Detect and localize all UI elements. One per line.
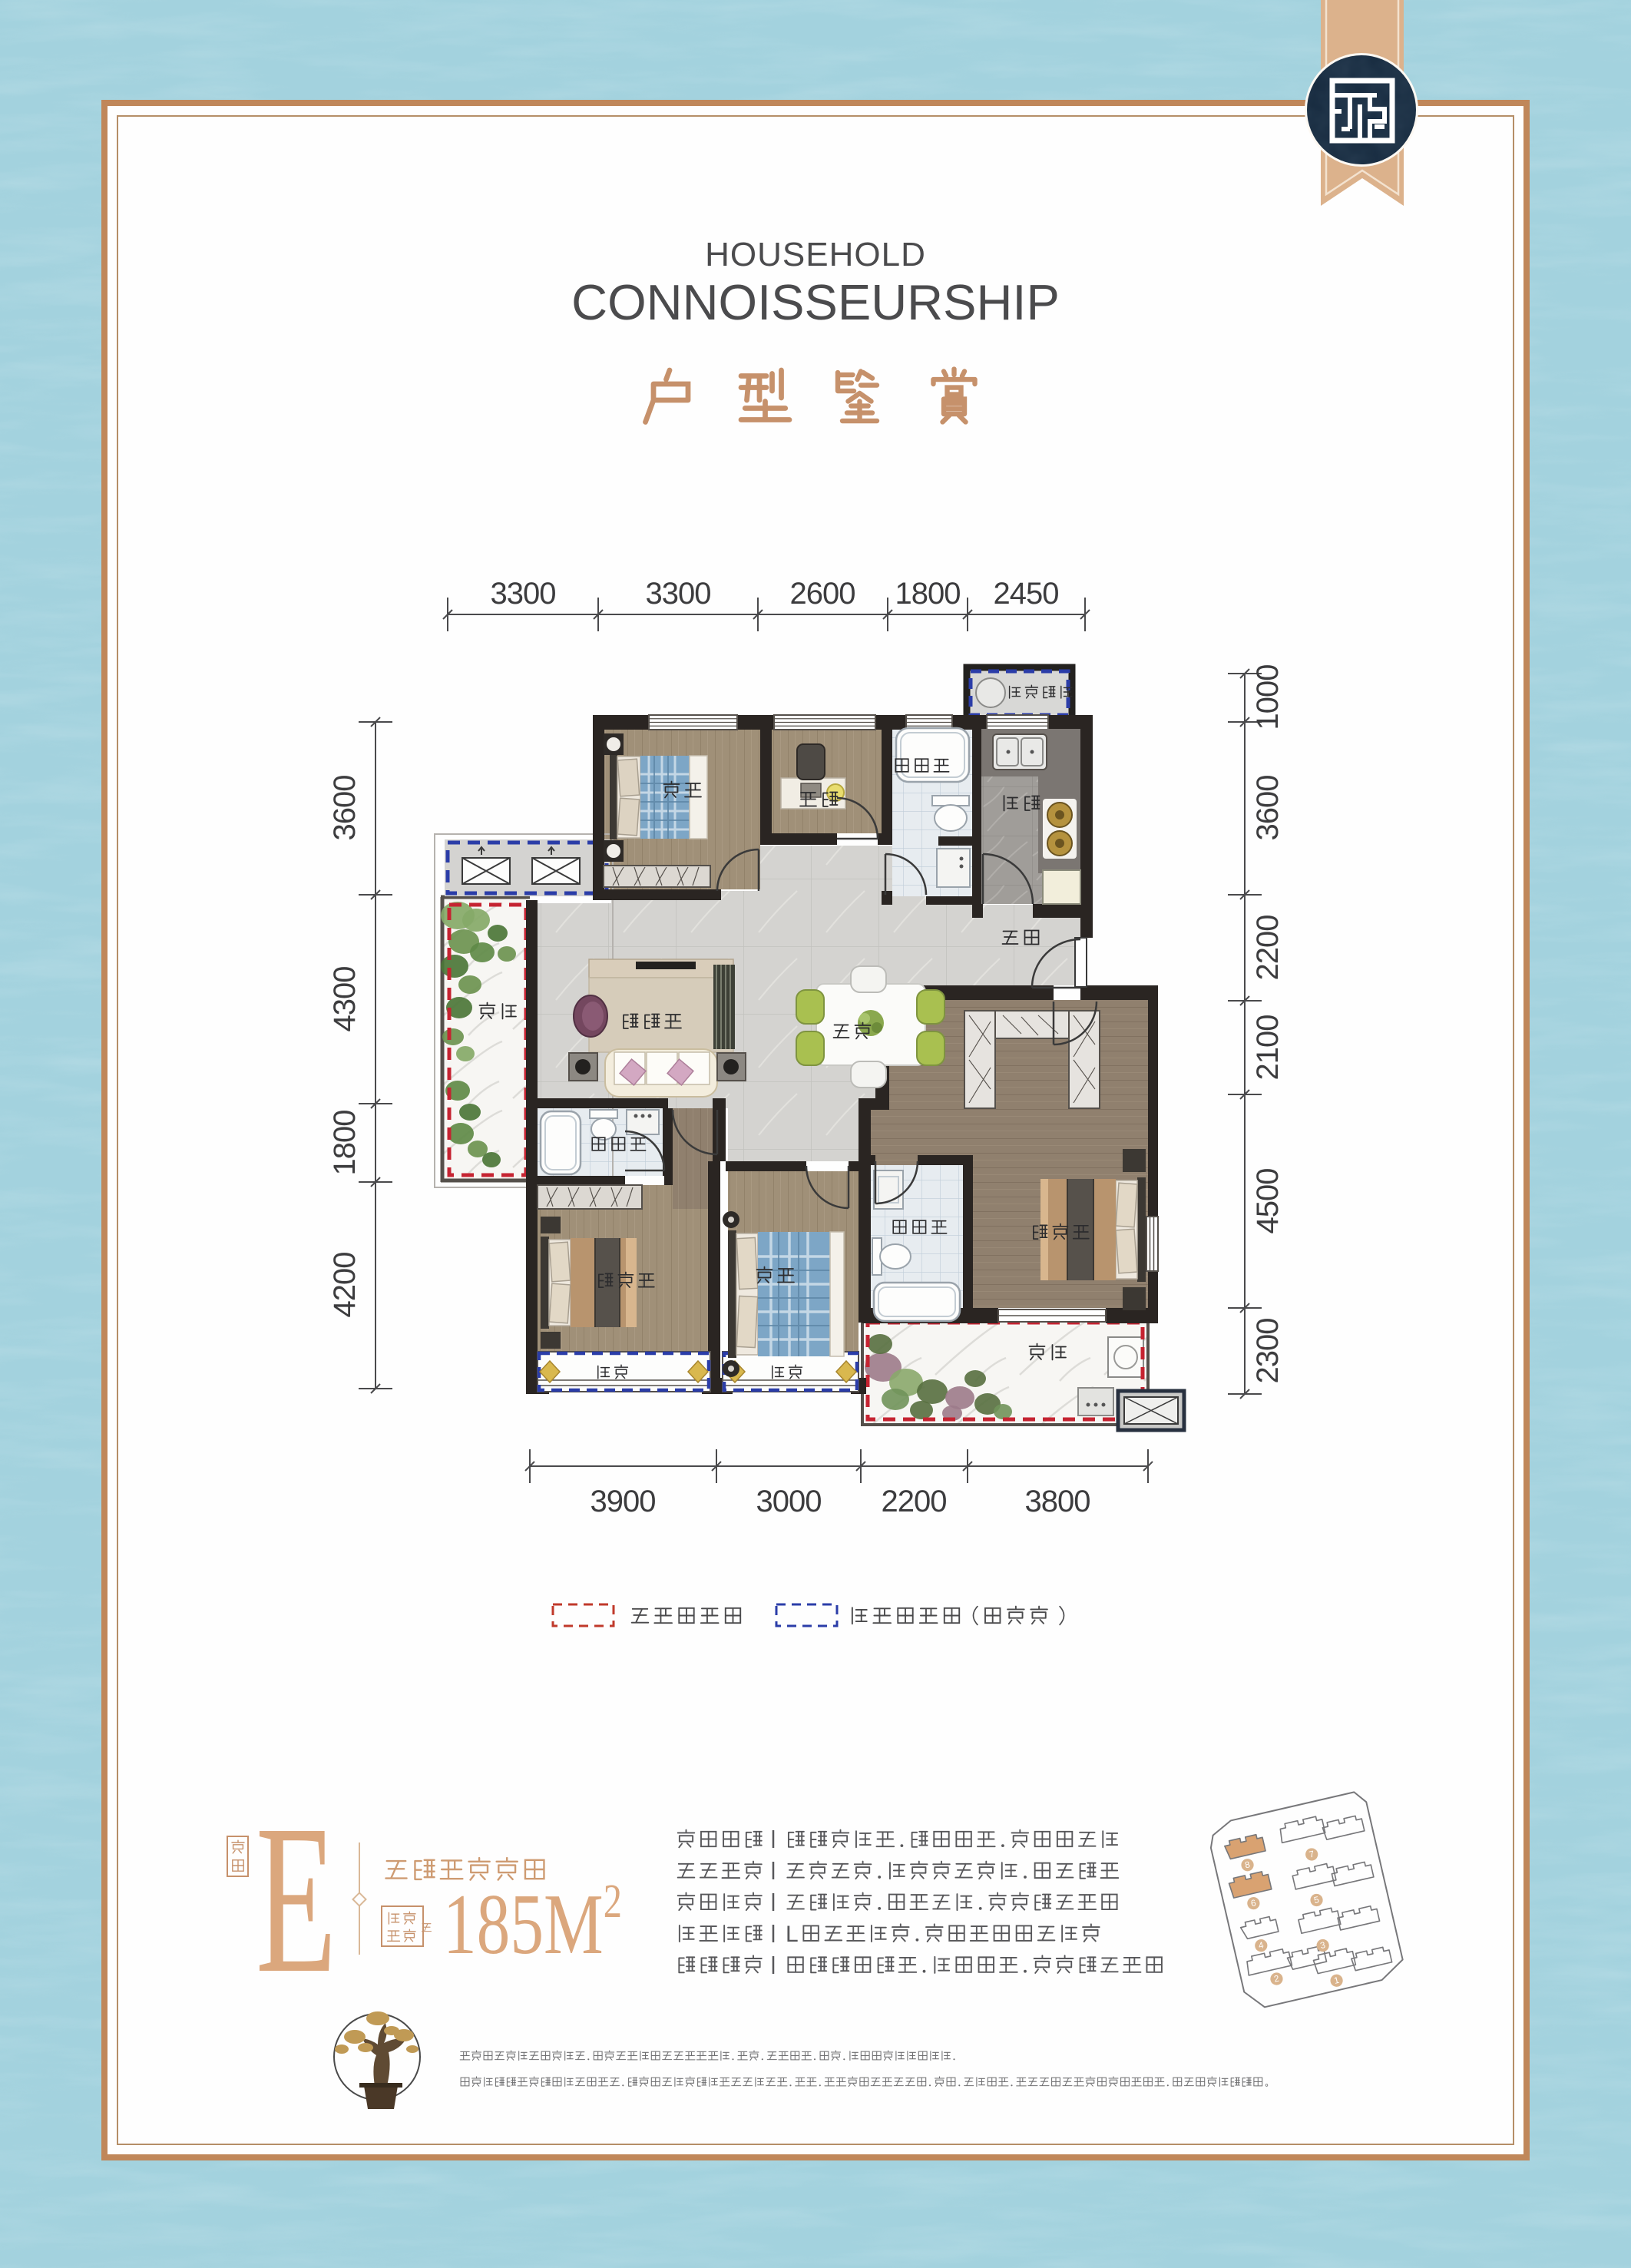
svg-text:4500: 4500 bbox=[1251, 1169, 1285, 1234]
svg-text:185M2: 185M2 bbox=[443, 1875, 622, 1972]
svg-text:CONNOISSEURSHIP: CONNOISSEURSHIP bbox=[571, 274, 1060, 330]
svg-text:3900: 3900 bbox=[591, 1485, 656, 1518]
svg-text:2600: 2600 bbox=[790, 577, 855, 611]
svg-text:3000: 3000 bbox=[756, 1485, 822, 1518]
svg-text:2200: 2200 bbox=[882, 1485, 947, 1518]
svg-text:3300: 3300 bbox=[646, 577, 711, 611]
svg-text:2450: 2450 bbox=[994, 577, 1059, 611]
svg-text:1800: 1800 bbox=[895, 577, 961, 611]
svg-text:4300: 4300 bbox=[328, 967, 362, 1032]
svg-text:L: L bbox=[786, 1922, 799, 1947]
svg-text:1000: 1000 bbox=[1251, 665, 1285, 730]
svg-text:E: E bbox=[256, 1782, 336, 2018]
svg-text:3300: 3300 bbox=[491, 577, 556, 611]
svg-text:3600: 3600 bbox=[328, 776, 362, 841]
svg-text:4200: 4200 bbox=[328, 1253, 362, 1318]
svg-text:2100: 2100 bbox=[1251, 1015, 1285, 1081]
svg-text:1800: 1800 bbox=[328, 1111, 362, 1176]
svg-text:3600: 3600 bbox=[1251, 776, 1285, 841]
svg-text:2200: 2200 bbox=[1251, 915, 1285, 981]
svg-text:3800: 3800 bbox=[1025, 1485, 1090, 1518]
svg-text:HOUSEHOLD: HOUSEHOLD bbox=[705, 236, 926, 273]
svg-text:2300: 2300 bbox=[1251, 1319, 1285, 1384]
